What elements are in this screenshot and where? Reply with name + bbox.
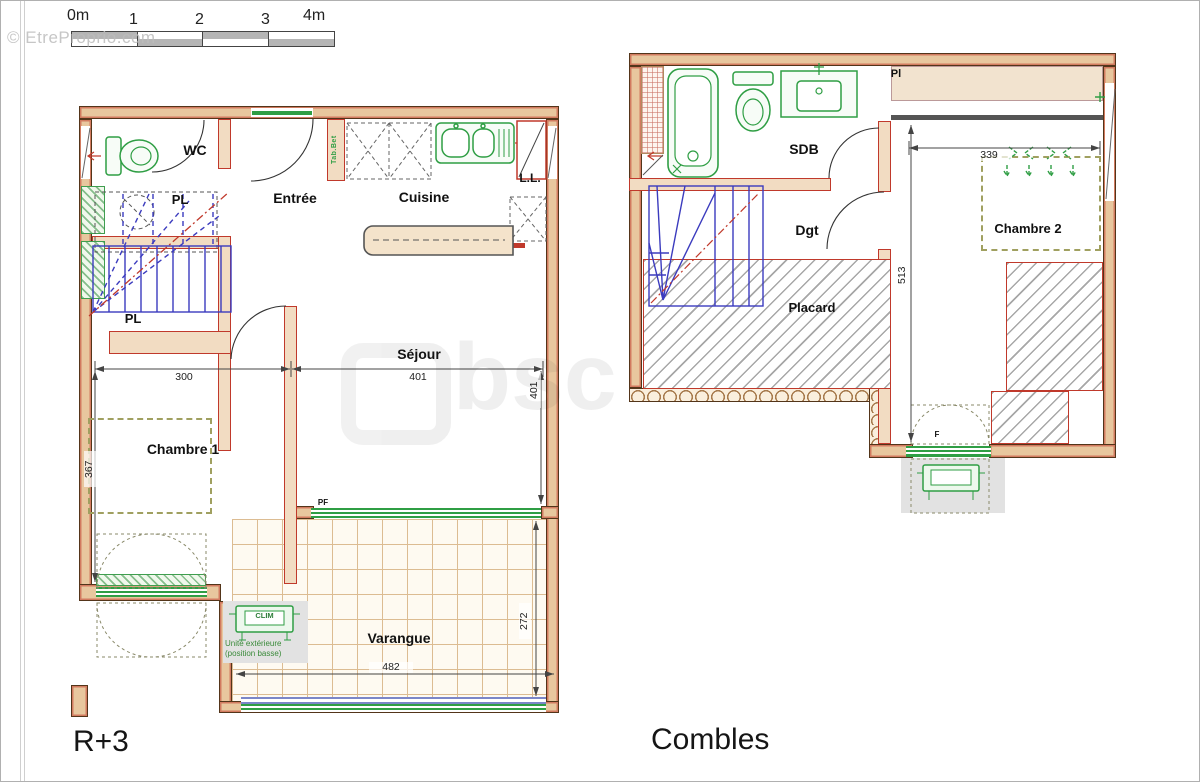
bathtub-icon [668, 69, 718, 177]
floorplan-page: 0m 1 2 3 4m © EtreProprio.com bsc [0, 0, 1200, 782]
label-pf: PF [314, 498, 332, 507]
scale-label-1: 1 [129, 11, 138, 29]
washbasin-icon [781, 63, 857, 117]
dim-varangue-width: 482 [369, 662, 413, 673]
toilet-icon [106, 137, 158, 175]
label-placard: Placard [780, 300, 844, 315]
roof-window-arrows [1004, 147, 1076, 176]
dim-varangue-height: 272 [519, 603, 531, 639]
scale-label-0: 0m [67, 7, 89, 25]
clim-mark-small [1095, 92, 1105, 102]
label-sdb: SDB [781, 141, 827, 157]
toilet2-icon [733, 72, 773, 131]
scale-label-2: 2 [195, 11, 204, 29]
label-pl-bottom: PL [119, 311, 147, 326]
door-arc-sdb [829, 128, 879, 178]
label-pl2: Pl [885, 68, 907, 80]
stair2-cut-line [651, 193, 759, 303]
french-door-arcs [97, 534, 206, 657]
window2-glazing [1106, 89, 1115, 199]
label-entree: Entrée [265, 190, 325, 206]
floor2-linework [629, 53, 1116, 521]
entree-door-icon [251, 113, 313, 181]
center-watermark: bsc [341, 331, 801, 441]
scale-label-3: 3 [261, 11, 270, 29]
kitchen-sink-icon [436, 123, 514, 163]
corner-detail-line [643, 155, 663, 175]
window-glazing-right [548, 128, 556, 178]
watermark-center-text: bsc [453, 323, 617, 432]
label-window-f: F [930, 430, 944, 439]
ac-unit-icon [917, 465, 985, 500]
washer-box-icon [510, 197, 546, 241]
dim-chambre2-height: 513 [897, 257, 909, 293]
floor1-title: R+3 [73, 725, 129, 759]
clim-note-line1: Unité extérieure [225, 639, 325, 649]
kitchen-island-icon [364, 226, 513, 255]
clim-note: Unité extérieure (position basse) [225, 639, 325, 659]
stair-cut-line [89, 192, 229, 316]
label-clim: CLIM [237, 611, 292, 620]
label-tab: Tab.Bet [331, 124, 338, 176]
water-heater-icon [95, 192, 217, 252]
wc-vent-arrow [88, 152, 101, 160]
label-ll: L.L. [516, 171, 544, 185]
dim-chambre1-height: 367 [84, 451, 96, 487]
scale-label-4: 4m [303, 7, 325, 25]
watermark-text: © EtreProprio.com [7, 28, 156, 48]
label-chambre1: Chambre 1 [135, 441, 231, 457]
label-wc: WC [177, 142, 213, 158]
door-arc-chambre2 [827, 192, 884, 249]
tub-vent-arrow [648, 152, 663, 160]
label-cuisine: Cuisine [392, 189, 456, 205]
page-edge-line [20, 1, 25, 782]
floor-plan-combles: SDB Pl Dgt Placard Chambre 2 F 339 513 [629, 53, 1116, 521]
kitchen-upper-cabinets [347, 123, 431, 179]
window-f-arcs [911, 405, 989, 513]
window-glazing-left [82, 128, 90, 178]
dim-chambre1-width: 300 [164, 372, 204, 383]
floor2-title: Combles [651, 723, 769, 757]
post-pillar [71, 685, 88, 717]
clim-note-line2: (position basse) [225, 649, 325, 659]
dim-chambre2-width: 339 [967, 150, 1011, 161]
label-dgt: Dgt [785, 222, 829, 238]
watermark-logo-icon [341, 343, 451, 445]
label-varangue: Varangue [364, 630, 434, 646]
label-chambre2: Chambre 2 [986, 221, 1070, 236]
label-pl-top: PL [165, 192, 195, 207]
door-arc-chambre1 [231, 306, 286, 359]
